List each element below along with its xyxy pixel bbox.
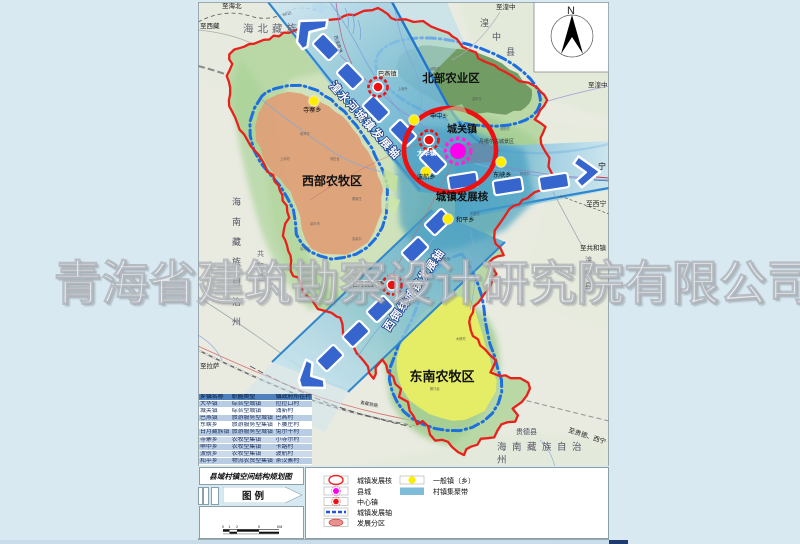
- svg-text:塔院村: 塔院村: [500, 126, 510, 131]
- svg-text:大华镇: 大华镇: [417, 148, 437, 157]
- svg-text:海南藏族自治: 海南藏族自治: [497, 441, 587, 453]
- svg-text:纳隆村: 纳隆村: [430, 66, 440, 71]
- svg-text:至拉萨: 至拉萨: [200, 361, 220, 370]
- svg-text:图例: 图例: [242, 490, 267, 502]
- svg-text:察汗素: 察汗素: [430, 386, 440, 391]
- svg-text:至西藏: 至西藏: [200, 21, 220, 30]
- svg-text:县: 县: [506, 47, 515, 57]
- svg-text:东南农牧区: 东南农牧区: [409, 369, 474, 384]
- svg-text:泉尔湾: 泉尔湾: [310, 221, 320, 226]
- svg-text:南: 南: [232, 216, 241, 227]
- svg-text:广元村: 广元村: [360, 116, 370, 121]
- svg-text:中心镇: 中心镇: [357, 498, 378, 507]
- svg-text:村镇集聚带: 村镇集聚带: [433, 487, 468, 496]
- svg-text:至西宁: 至西宁: [586, 199, 607, 208]
- svg-text:5: 5: [258, 525, 260, 529]
- svg-text:1: 1: [229, 525, 231, 529]
- svg-text:丹噶尔古城景区: 丹噶尔古城景区: [479, 138, 514, 145]
- svg-text:东峡乡: 东峡乡: [493, 171, 512, 179]
- svg-text:木槽村: 木槽村: [456, 336, 466, 341]
- svg-text:一般镇（乡）: 一般镇（乡）: [433, 476, 475, 485]
- svg-text:上寺村: 上寺村: [280, 156, 290, 161]
- svg-text:上胡丹: 上胡丹: [398, 86, 408, 91]
- svg-text:城镇发展核: 城镇发展核: [436, 190, 489, 203]
- svg-text:莫布拉: 莫布拉: [472, 96, 482, 101]
- svg-text:州: 州: [497, 455, 507, 466]
- svg-text:中: 中: [492, 31, 501, 42]
- svg-text:州: 州: [232, 317, 241, 327]
- svg-text:至湟中: 至湟中: [496, 2, 516, 11]
- svg-text:至海北: 至海北: [222, 2, 242, 10]
- svg-text:西部农牧区: 西部农牧区: [302, 173, 362, 188]
- svg-text:县城: 县城: [357, 488, 371, 496]
- svg-text:城镇发展核: 城镇发展核: [357, 476, 392, 485]
- svg-text:河拉台: 河拉台: [330, 156, 340, 161]
- svg-text:海北藏族: 海北藏族: [243, 22, 301, 35]
- svg-text:响河尔: 响河尔: [520, 171, 530, 176]
- svg-text:城关镇: 城关镇: [447, 123, 477, 136]
- svg-text:湟: 湟: [480, 17, 489, 28]
- svg-text:城镇发展轴: 城镇发展轴: [357, 508, 392, 517]
- svg-text:董家庄: 董家庄: [352, 196, 362, 201]
- svg-text:寺寨乡: 寺寨乡: [303, 106, 322, 114]
- svg-text:海: 海: [232, 196, 241, 207]
- svg-text:波航乡: 波航乡: [417, 173, 436, 181]
- svg-text:和平乡: 和平乡: [456, 216, 475, 224]
- svg-text:北部农业区: 北部农业区: [422, 71, 480, 85]
- svg-text:0: 0: [222, 525, 224, 529]
- svg-text:至湟中: 至湟中: [588, 80, 608, 89]
- svg-text:KM: KM: [277, 525, 282, 529]
- svg-text:宁: 宁: [598, 161, 606, 171]
- svg-text:2: 2: [236, 525, 238, 529]
- svg-text:贵德县: 贵德县: [516, 427, 537, 436]
- svg-text:大路村: 大路村: [470, 211, 480, 216]
- svg-text:发展分区: 发展分区: [357, 519, 385, 528]
- svg-text:克素尔: 克素尔: [352, 236, 362, 241]
- svg-text:巴燕镇: 巴燕镇: [378, 70, 397, 78]
- svg-text:塔湾村: 塔湾村: [300, 131, 310, 136]
